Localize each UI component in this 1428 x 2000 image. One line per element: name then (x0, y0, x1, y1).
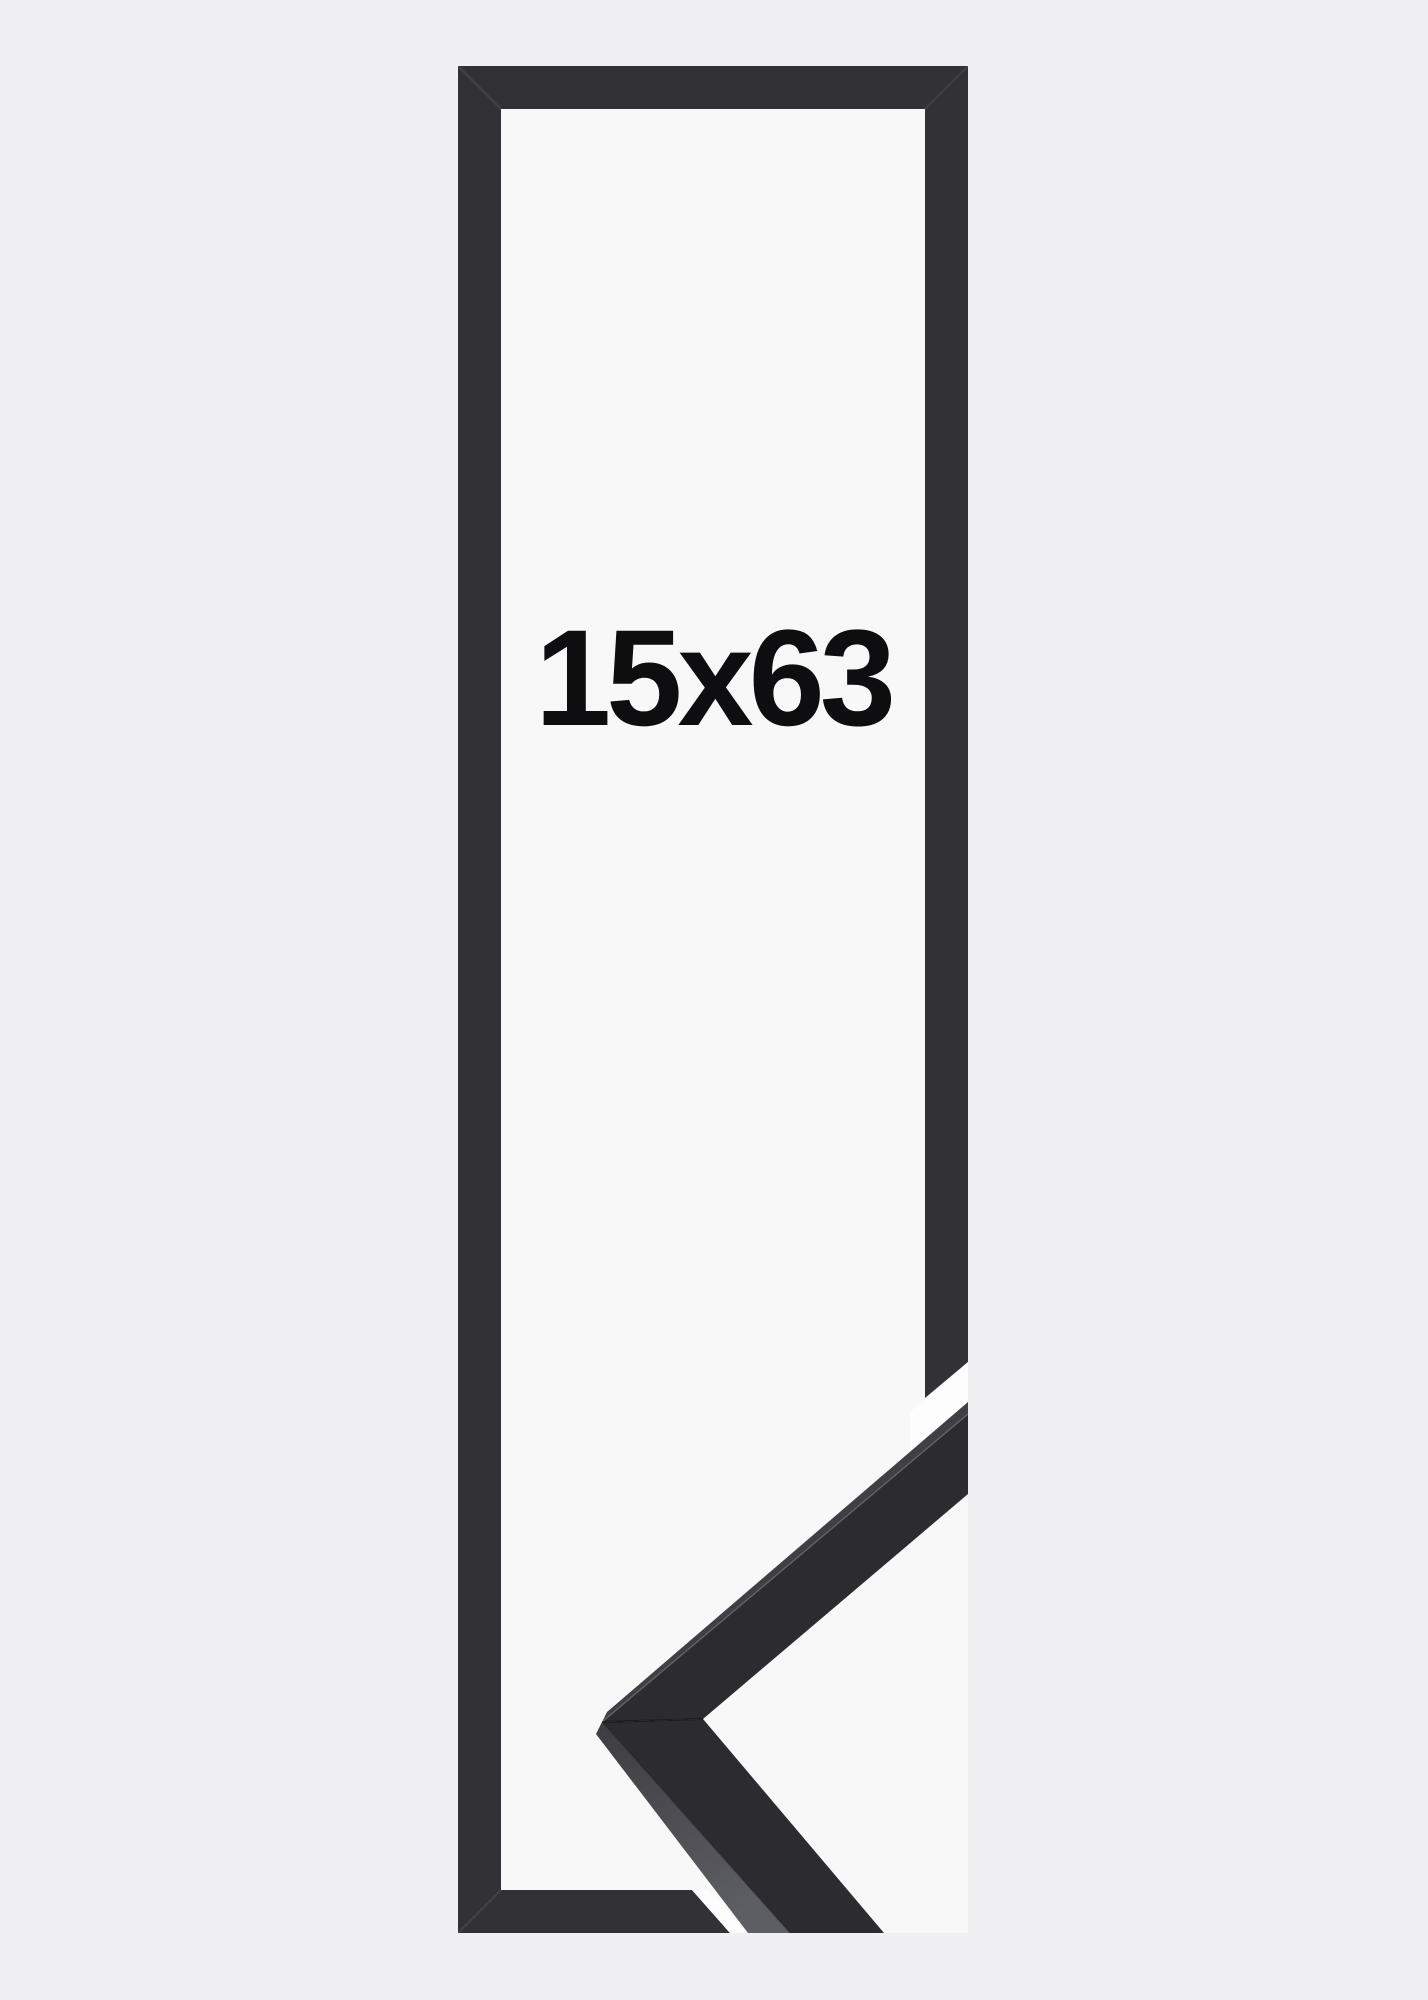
frame-graphic (0, 0, 1428, 2000)
frame-rail-bottom (458, 1890, 730, 1933)
frame-rail-left (458, 66, 501, 1933)
frame-size-label: 15x63 (458, 610, 968, 746)
frame-rail-top (458, 66, 968, 109)
frame-product-image: 15x63 (0, 0, 1428, 2000)
